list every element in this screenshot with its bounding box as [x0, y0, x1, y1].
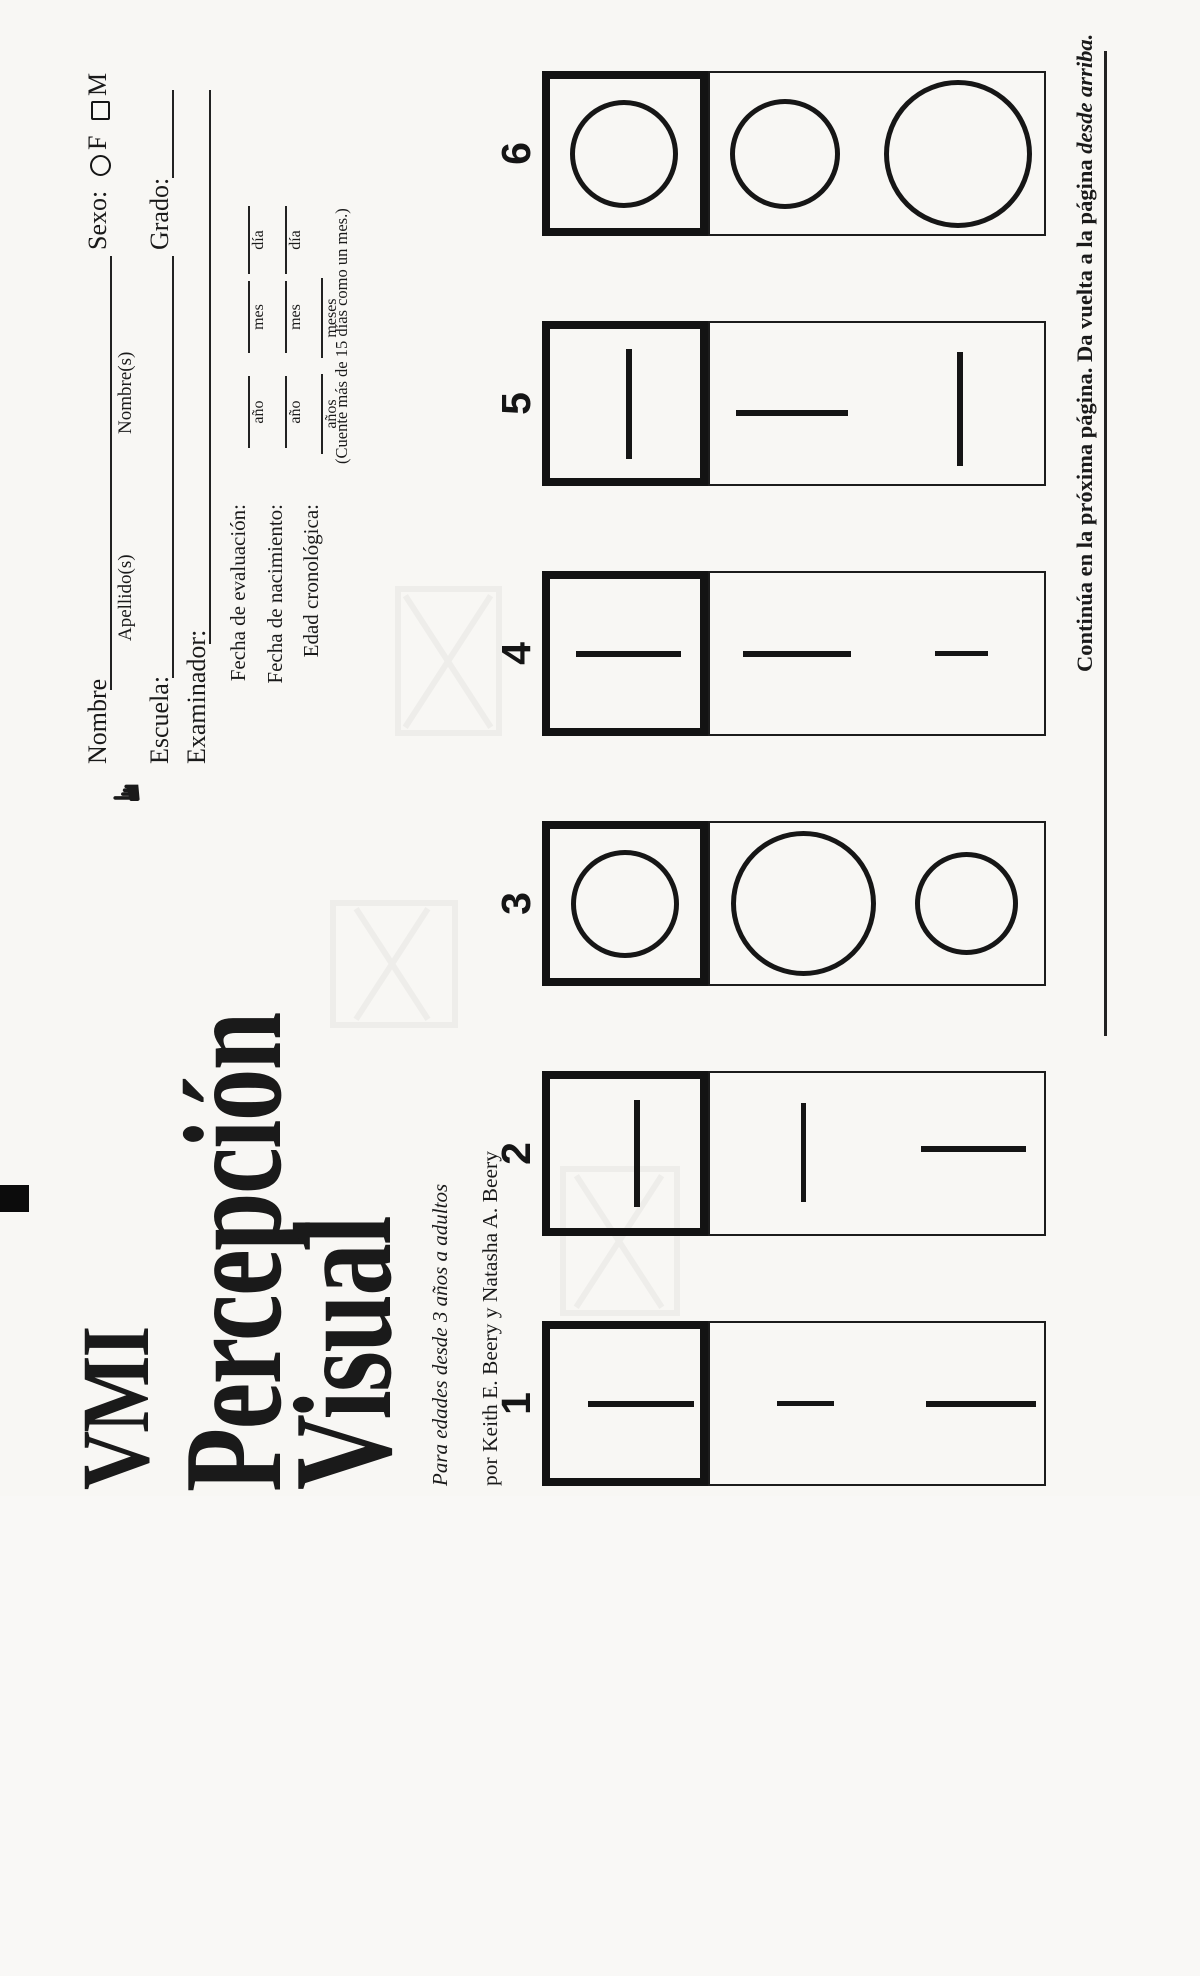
footer-note-italic: desde arriba. [1072, 34, 1097, 154]
choice-vline [921, 1146, 1026, 1152]
response-box [708, 1071, 1046, 1236]
scanned-form-page: ☛ Nombre Apellido(s) Nombre(s) Sexo: F M… [0, 0, 1200, 1976]
stimulus-circle [571, 850, 679, 958]
stimulus-vline [588, 1401, 694, 1407]
choice-hline [957, 352, 963, 466]
choice-circle [731, 832, 876, 977]
footer-note: Continúa en la próxima página. Da vuelta… [1072, 34, 1098, 672]
vmi-form-rotated-page: ☛ Nombre Apellido(s) Nombre(s) Sexo: F M… [0, 0, 1200, 1496]
choice-vline [743, 651, 851, 657]
choice-vline [777, 1402, 834, 1407]
stimulus-hline [634, 1100, 640, 1207]
stimulus-box [542, 1071, 708, 1236]
choice-vline [926, 1401, 1036, 1407]
stimulus-hline [626, 349, 632, 459]
choice-circle [730, 99, 840, 209]
footer-rule [1104, 51, 1107, 1036]
stimulus-box [542, 321, 708, 486]
choice-circle [915, 853, 1018, 956]
pointing-hand-icon: ☛ [110, 771, 142, 812]
response-box [708, 321, 1046, 486]
footer-note-main: Continúa en la próxima página. Da vuelta… [1072, 154, 1097, 672]
item-5: 5 [0, 321, 1200, 486]
item-number: 4 [496, 571, 537, 736]
item-number: 1 [496, 1321, 537, 1486]
item-4: 4 [0, 571, 1200, 736]
choice-vline [736, 410, 848, 416]
choice-circle [884, 80, 1032, 228]
item-number: 5 [496, 321, 537, 486]
stimulus-circle [570, 100, 678, 208]
item-2: 2 [0, 1071, 1200, 1236]
item-6: 6 [0, 71, 1200, 236]
item-number: 2 [496, 1071, 537, 1236]
item-number: 6 [496, 71, 537, 236]
choice-vline [935, 652, 988, 657]
item-1: 1 [0, 1321, 1200, 1486]
item-3: 3 [0, 821, 1200, 986]
choice-hline [801, 1103, 806, 1202]
stimulus-vline [576, 651, 681, 657]
item-number: 3 [496, 821, 537, 986]
